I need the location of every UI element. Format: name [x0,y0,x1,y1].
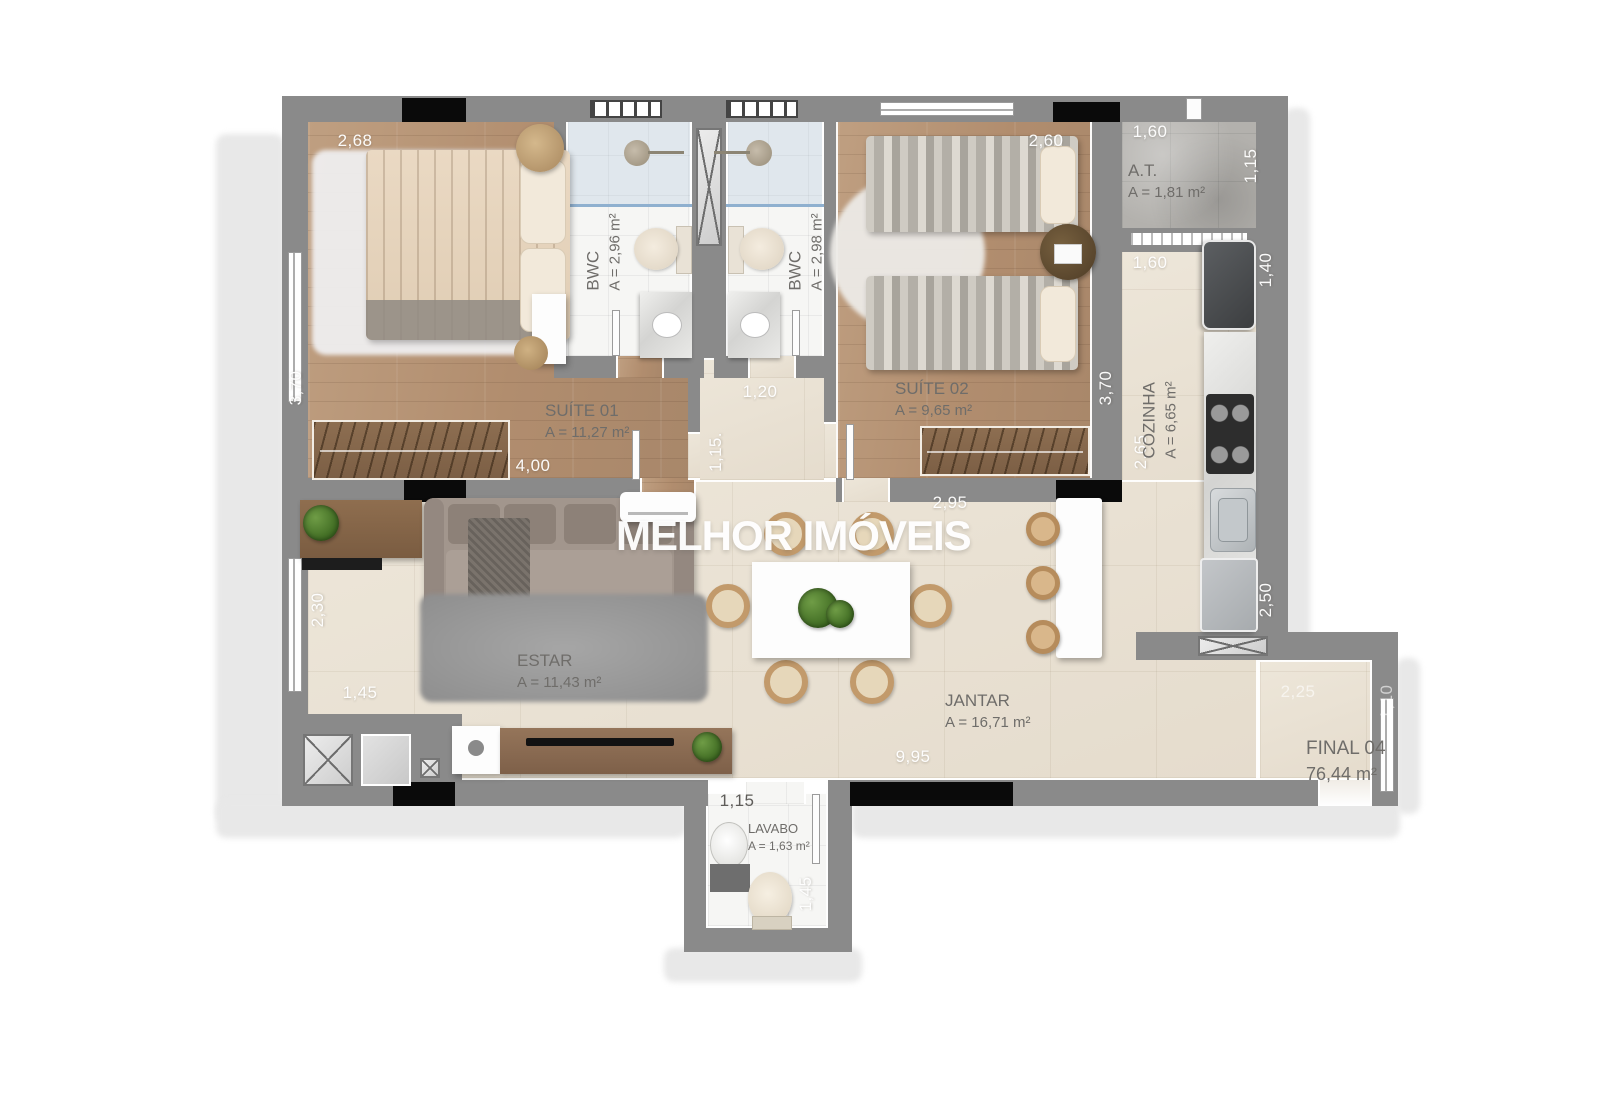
room-label-suite01: SUÍTE 01 A = 11,27 m² [545,400,629,443]
dim-at-right: 1,15 [1241,149,1261,184]
door-gap-bwc02 [748,356,796,378]
shower-arm-bwc02 [714,151,750,154]
floor-plan-canvas: 2,68 3,70 4,00 2,60 3,70 2,95 1,60 1,15 … [0,0,1600,1093]
room-name-cozinha: COZINHA [1138,381,1161,458]
service-box [361,734,411,786]
unit-name: FINAL 04 [1306,736,1386,762]
wall-left [282,96,308,806]
nightstand-suite01-top [516,124,564,172]
window-bwc01-top [590,100,662,118]
dim-suite01-top: 2,68 [338,131,373,151]
dining-chair-right [908,584,952,628]
shower-head-bwc01 [624,140,650,166]
window-suite02-top [880,102,1014,116]
dim-at-top: 1,60 [1133,122,1168,142]
dim-terrace-right: 1,10 [1377,685,1397,720]
toilet-tank-lavabo [752,916,792,930]
plan-shadow-right-lower [1396,658,1420,814]
pillow-suite02-b [1040,286,1076,362]
dining-chair-bottom-left [764,660,808,704]
wall-lavabo-left [684,780,706,952]
wall-lavabo-bottom [684,928,852,952]
laundry-tub [1198,636,1268,656]
plant-console [692,732,722,762]
room-area-bwc02: A = 2,98 m² [807,213,827,290]
wall-suite02-cozinha [1092,120,1122,502]
dim-lavabo-top: 1,15 [720,791,755,811]
unit-label: FINAL 04 76,44 m² [1306,736,1386,786]
stove [1206,394,1254,474]
sofa-throw-blanket [468,518,530,602]
elevator-shaft [303,734,353,786]
dim-suite01-bottom: 4,00 [516,456,551,476]
dim-cozinha-top: 1,60 [1133,253,1168,273]
shower-glass-bwc01 [566,204,692,207]
window-at-top [1186,98,1202,120]
tv [526,738,674,746]
column-bottom-2 [850,782,1013,806]
dim-suite02-top: 2,60 [1029,131,1064,151]
toilet-bwc02 [740,228,784,270]
plant-estar [303,505,339,541]
vase [468,740,484,756]
door-leaf-lavabo-pocket [812,794,820,864]
room-area-jantar: A = 16,71 m² [945,713,1030,733]
pillow-suite01-a [520,160,566,244]
wardrobe-suite01 [312,420,510,480]
room-name-suite02: SUÍTE 02 [895,378,972,401]
dim-cozinha-right-upper: 1,40 [1256,253,1276,288]
shower-arm-bwc01 [648,151,684,154]
sink-bwc02 [740,312,770,338]
unit-area: 76,44 m² [1306,762,1386,786]
book-suite02 [1054,244,1082,264]
door-gap-hall-left [688,432,700,480]
dim-suite02-right: 3,70 [1096,371,1116,406]
dim-hall-left: 1,15. [706,432,726,472]
dining-chair-left [706,584,750,628]
dim-jantar-bottom: 9,95 [896,747,931,767]
toilet-tank-bwc01 [676,226,692,274]
door-leaf-suite01 [632,430,640,480]
sink-bwc01 [652,312,682,338]
column-top-1 [402,98,466,122]
door-leaf-bwc01 [612,310,620,356]
dishwasher [1200,558,1258,632]
door-leaf-bwc02 [792,310,800,356]
room-name-estar: ESTAR [517,650,601,673]
sofa-cushion [564,504,616,544]
shower-glass-bwc02 [726,204,824,207]
room-label-jantar: JANTAR A = 16,71 m² [945,690,1030,733]
fridge [1202,240,1256,330]
dim-suite01-left: 3,70 [286,371,306,406]
dining-chair-bottom-right [850,660,894,704]
room-name-at: A.T. [1128,160,1205,183]
sink-lavabo [710,822,748,868]
room-area-suite01: A = 11,27 m² [545,423,629,443]
room-name-bwc01: BWC [582,213,605,290]
duct-shaft [696,128,722,246]
room-name-suite01: SUÍTE 01 [545,400,629,423]
room-label-bwc02: BWC A = 2,98 m² [784,213,827,290]
door-leaf-suite02 [846,424,854,480]
door-gap-hall-right [824,422,836,480]
dim-suite02-bottom: 2,95 [933,493,968,513]
window-bwc02-top [726,100,798,118]
dim-estar-bottom: 1,45 [343,683,378,703]
toilet-bwc01 [634,228,678,270]
dim-terrace-top: 2,25 [1281,682,1316,702]
room-name-jantar: JANTAR [945,690,1030,713]
dim-hall-top: 1,20 [743,382,778,402]
room-area-estar: A = 11,43 m² [517,673,601,693]
room-label-suite02: SUÍTE 02 A = 9,65 m² [895,378,972,421]
wall-bottom-right [1158,780,1318,806]
door-gap-suite02 [842,478,890,502]
room-area-suite02: A = 9,65 m² [895,401,972,421]
room-label-at: A.T. A = 1,81 m² [1128,160,1205,203]
stool-3 [1026,620,1060,654]
side-table-suite01 [514,336,548,370]
room-label-estar: ESTAR A = 11,43 m² [517,650,601,693]
plan-shadow-lavabo [664,948,862,982]
dim-lavabo-right: 1,45 [796,877,816,912]
column-top-2 [1053,102,1120,122]
room-label-bwc01: BWC A = 2,96 m² [582,213,625,290]
dim-cozinha-right-lower: 2,50 [1256,583,1276,618]
watermark-logo: MELHOR IMÓVEIS [616,512,971,560]
room-area-bwc01: A = 2,96 m² [605,213,625,290]
room-name-lavabo: LAVABO [748,820,810,838]
stool-2 [1026,566,1060,600]
plant-dining-b [826,600,854,628]
room-label-lavabo: LAVABO A = 1,63 m² [748,820,810,854]
room-label-cozinha: COZINHA A = 6,65 m² [1138,381,1181,458]
shower-zone-bwc01 [568,122,690,206]
wardrobe-suite02 [920,426,1090,476]
window-estar-left [288,558,302,692]
room-area-cozinha: A = 6,65 m² [1161,381,1181,458]
stool-1 [1026,512,1060,546]
room-area-lavabo: A = 1,63 m² [748,838,810,854]
room-area-at: A = 1,81 m² [1128,183,1205,203]
pillow-suite02-a [1040,146,1076,224]
plan-shadow-left [216,134,284,824]
cabinet-lavabo [710,864,750,892]
room-name-bwc02: BWC [784,213,807,290]
dim-estar-left: 2,30 [308,593,328,628]
shower-zone-bwc02 [728,122,822,206]
kitchen-island [1056,498,1102,658]
door-gap-bwc01 [616,356,664,378]
shelf-estar [302,558,382,570]
kitchen-sink-basin [1218,498,1248,542]
small-duct [420,758,440,778]
